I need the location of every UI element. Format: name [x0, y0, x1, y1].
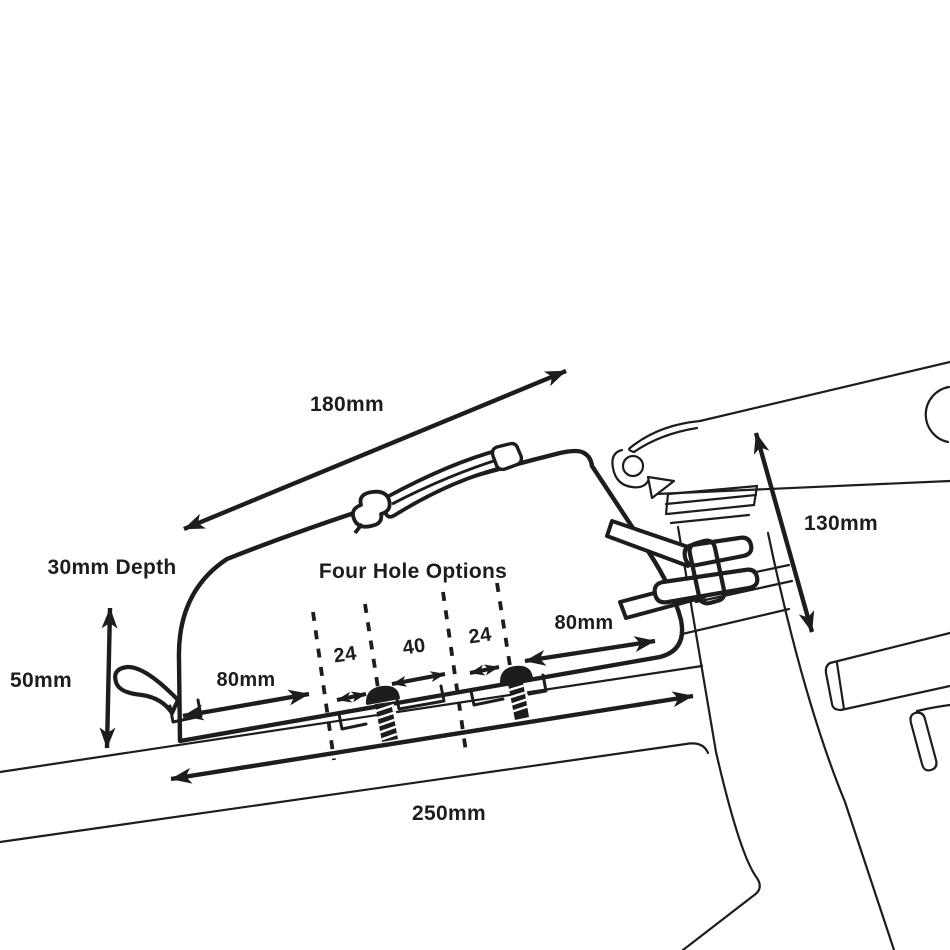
stem-nose-upper	[630, 421, 700, 448]
label-80mm-left: 80mm	[216, 669, 275, 691]
label-30mm-depth: 30mm Depth	[47, 556, 176, 579]
brake-hood	[826, 633, 950, 770]
top-tube-bottom-edge	[0, 743, 708, 842]
hood-bottom-edge	[841, 686, 950, 710]
label-80mm-right: 80mm	[554, 612, 613, 634]
head-tube-rear-edge	[768, 533, 894, 950]
stem-bolt-icon	[623, 456, 643, 476]
handlebar-clamp-arc	[926, 387, 949, 442]
stem-top-edge	[700, 362, 950, 421]
hood-top-edge	[830, 633, 950, 663]
label-130mm: 130mm	[804, 512, 878, 535]
hood-end-cap-inner	[837, 663, 844, 709]
label-24-left: 24	[332, 642, 358, 667]
label-250mm: 250mm	[412, 802, 486, 825]
diagram-canvas: 180mm 30mm Depth 50mm Four Hole Options …	[0, 0, 950, 950]
strap-band-lower	[655, 570, 758, 603]
stem-nose-tip	[629, 448, 634, 452]
cord-toggle	[493, 444, 522, 470]
label-180mm: 180mm	[310, 393, 384, 416]
stem	[612, 362, 950, 498]
label-four-hole-options: Four Hole Options	[319, 560, 507, 583]
dimension-diagram: 180mm 30mm Depth 50mm Four Hole Options …	[0, 0, 950, 950]
label-40: 40	[401, 635, 427, 660]
lever-pivot-line	[917, 705, 950, 711]
screw-1	[366, 686, 400, 742]
label-24-right: 24	[467, 623, 493, 648]
stem-nose-inner	[634, 428, 697, 452]
brake-lever-blade	[911, 713, 937, 771]
label-50mm: 50mm	[10, 669, 72, 692]
arrow-50mm	[107, 608, 110, 748]
stem-bottom-edge	[656, 481, 950, 494]
